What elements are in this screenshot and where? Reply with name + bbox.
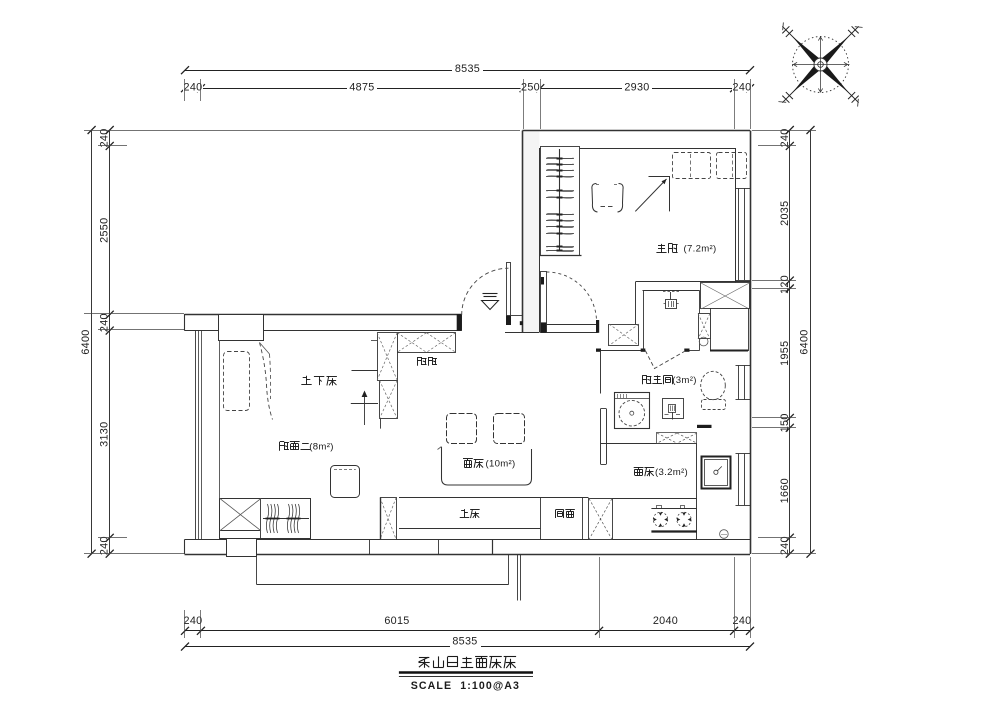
svg-text:(10m²): (10m²) — [485, 459, 515, 470]
svg-text:240: 240 — [779, 536, 791, 555]
svg-text:120: 120 — [779, 275, 791, 294]
svg-text:1660: 1660 — [779, 478, 791, 503]
svg-text:8535: 8535 — [452, 636, 477, 648]
svg-text:3130: 3130 — [98, 422, 110, 447]
svg-text:150: 150 — [779, 413, 791, 432]
svg-text:(3m²): (3m²) — [672, 375, 696, 386]
svg-text:6400: 6400 — [80, 329, 92, 354]
svg-text:1955: 1955 — [779, 341, 791, 366]
svg-text:240: 240 — [98, 128, 110, 147]
svg-text:240: 240 — [733, 81, 752, 93]
svg-text:(7.2m²): (7.2m²) — [683, 244, 716, 255]
svg-text:4875: 4875 — [349, 81, 374, 93]
svg-text:2040: 2040 — [653, 615, 678, 627]
svg-text:(8m²): (8m²) — [309, 441, 333, 452]
svg-text:240: 240 — [733, 615, 752, 627]
svg-text:240: 240 — [779, 128, 791, 147]
svg-text:240: 240 — [184, 81, 203, 93]
svg-text:2035: 2035 — [779, 201, 791, 226]
svg-text:SCALE 1:100@A3: SCALE 1:100@A3 — [411, 680, 520, 692]
svg-text:6015: 6015 — [384, 615, 409, 627]
svg-text:240: 240 — [98, 536, 110, 555]
svg-text:2930: 2930 — [624, 81, 649, 93]
svg-text:(3.2m²): (3.2m²) — [655, 467, 688, 478]
svg-text:250: 250 — [521, 81, 540, 93]
svg-text:2550: 2550 — [98, 218, 110, 243]
svg-text:240: 240 — [184, 615, 203, 627]
svg-text:6400: 6400 — [799, 329, 811, 354]
svg-text:8535: 8535 — [455, 63, 480, 75]
